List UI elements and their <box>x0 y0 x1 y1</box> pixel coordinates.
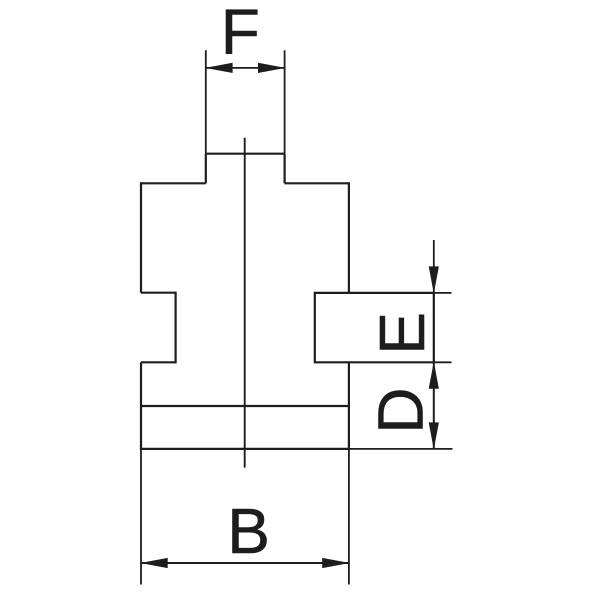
svg-text:B: B <box>227 495 270 567</box>
svg-text:D: D <box>365 388 437 434</box>
svg-text:F: F <box>221 0 260 68</box>
svg-text:E: E <box>366 312 438 355</box>
